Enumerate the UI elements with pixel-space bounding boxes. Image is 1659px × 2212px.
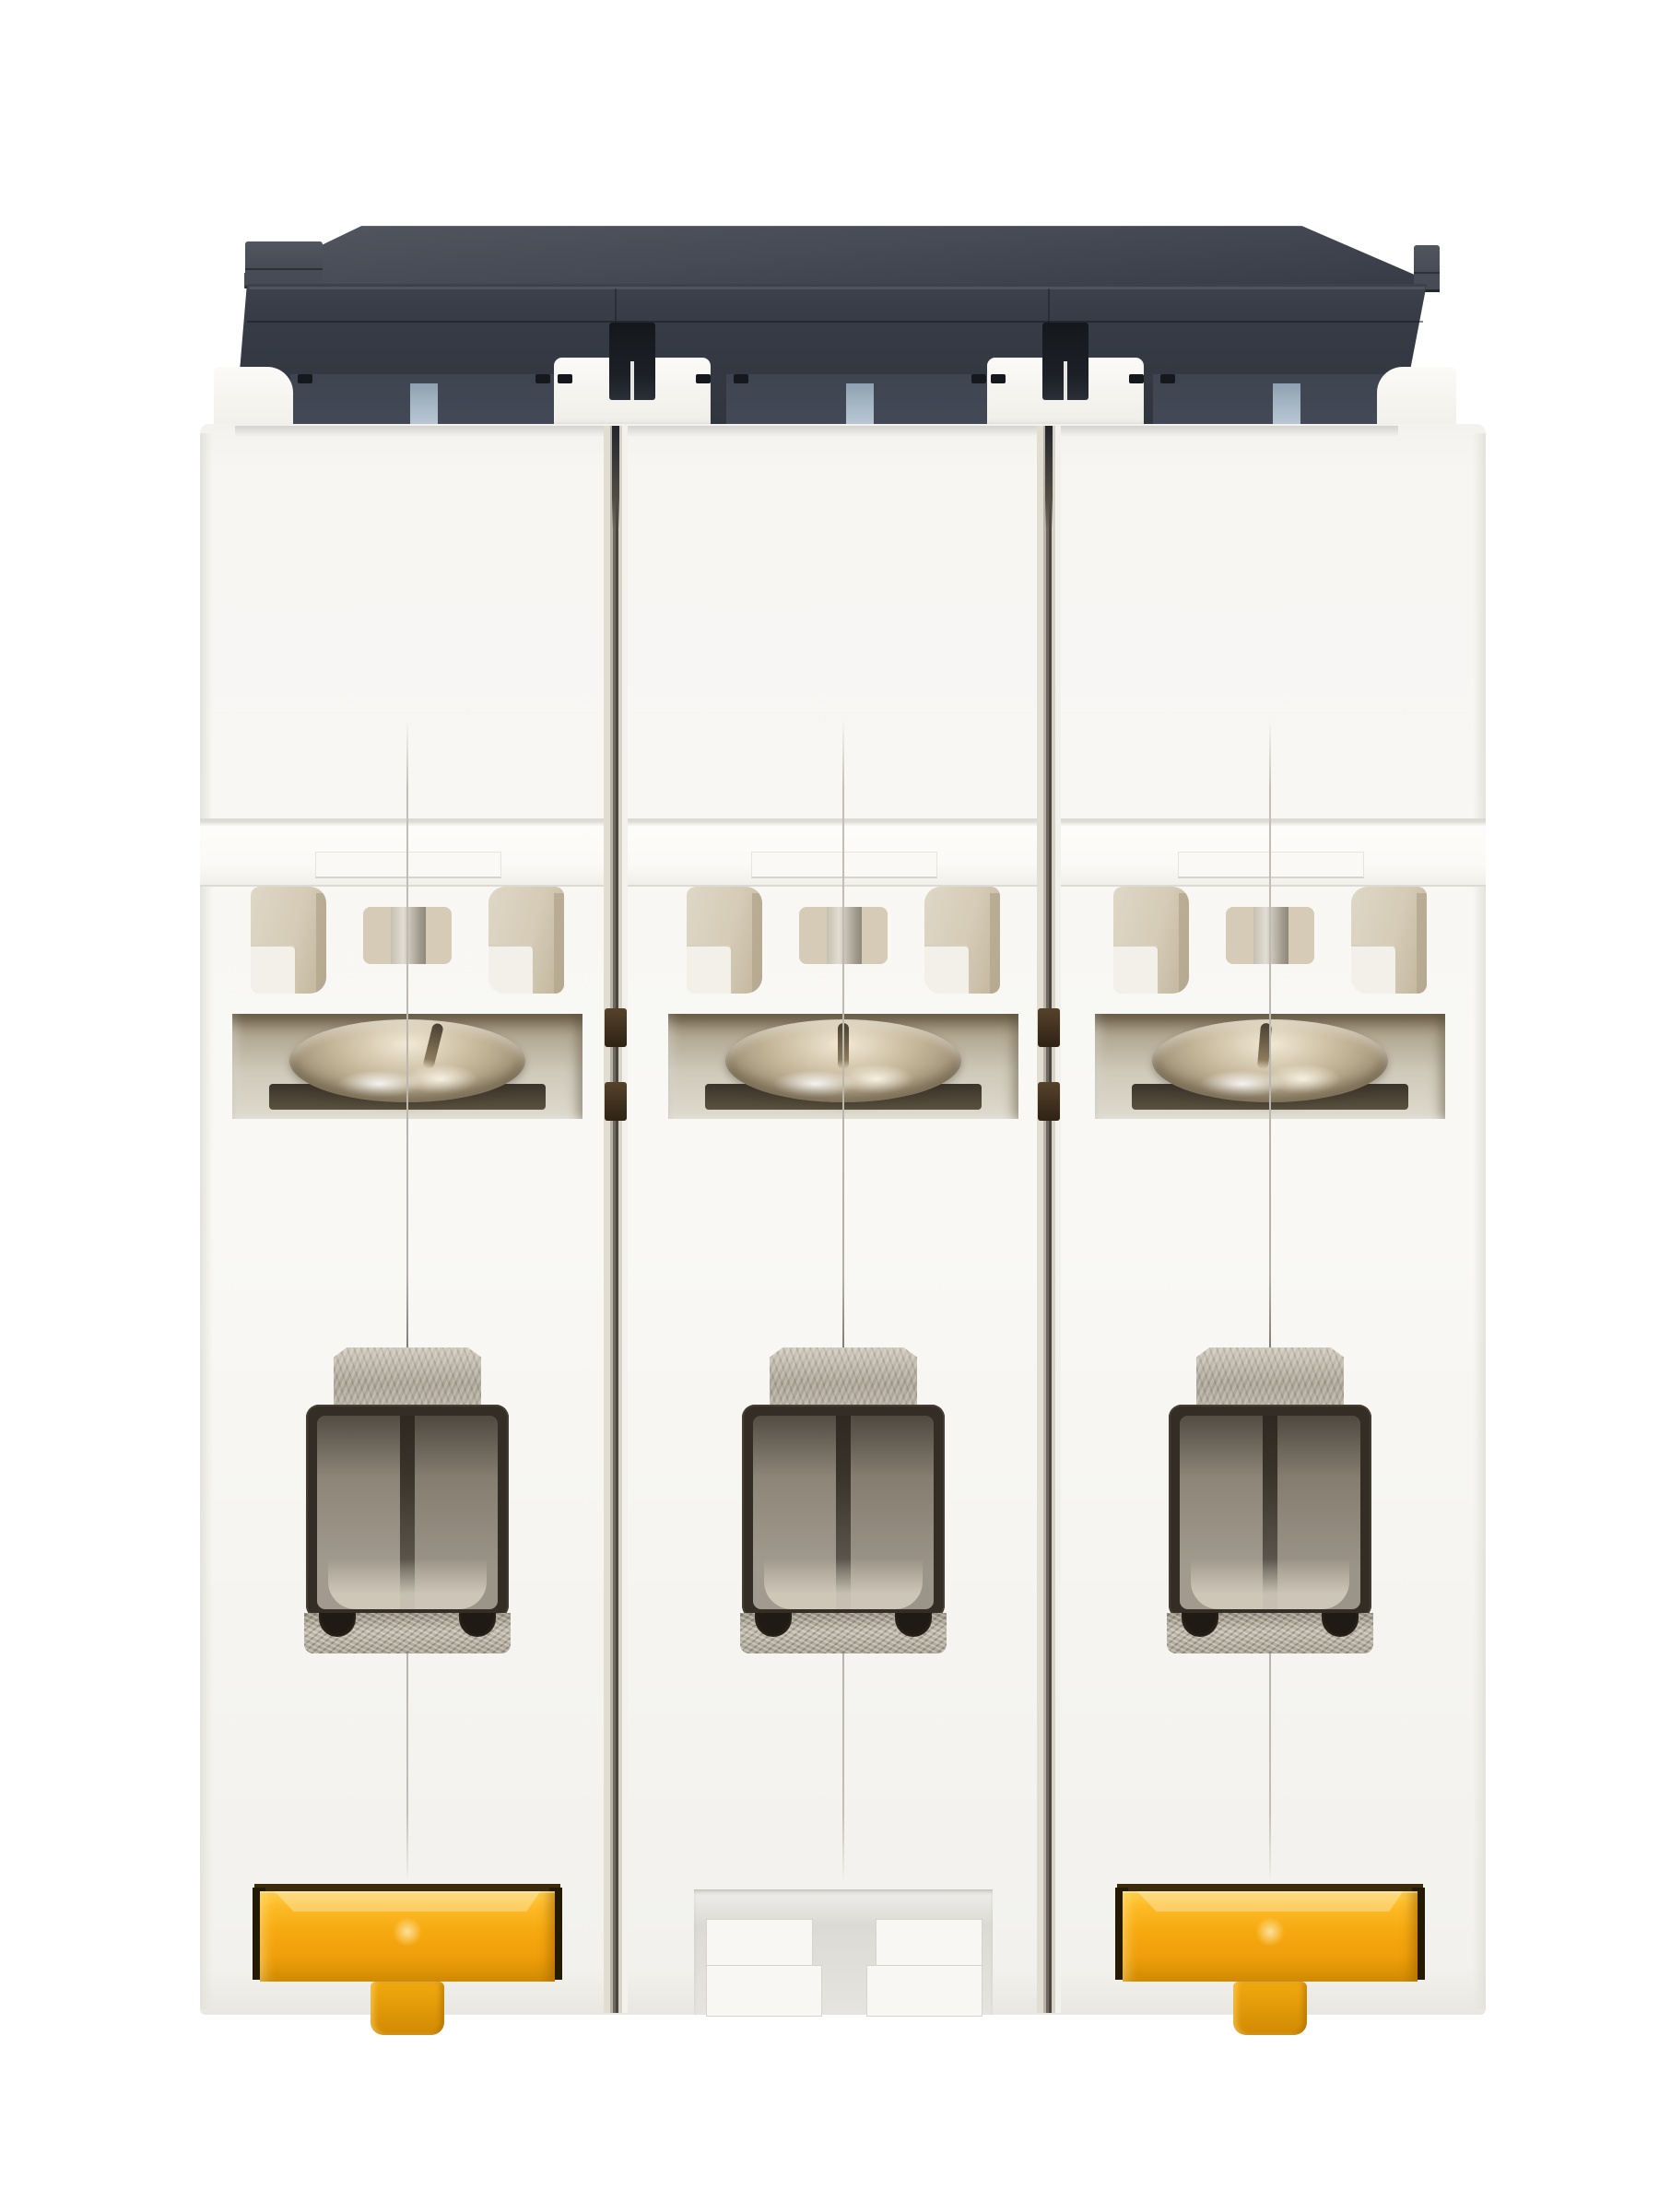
junction-lock-slot: [1038, 1082, 1060, 1121]
shell-seam: [406, 719, 408, 1884]
vent-window-right: [1351, 887, 1427, 994]
window-inner-sill: [1113, 945, 1159, 994]
terminal-clamp-tab: [334, 1347, 481, 1408]
terminal-opening: [742, 1405, 945, 1618]
terminal-clamp-tab: [770, 1347, 917, 1408]
window-inner-sill: [687, 945, 733, 994]
vent-window-right: [488, 887, 564, 994]
terminal-cage-interior: [1180, 1416, 1360, 1609]
window-inner-sill: [251, 945, 297, 994]
vent-window-left: [687, 887, 762, 994]
terminal-cage-interior: [317, 1416, 498, 1609]
cage-top-shade: [1180, 1416, 1360, 1609]
vent-window-right: [924, 887, 1000, 994]
window-inner-wall: [1417, 893, 1427, 994]
shell-seam: [842, 719, 844, 1884]
cutout-hook-right: [876, 1919, 982, 1969]
left-edge-shade: [200, 433, 213, 2009]
din-clip-tab: [1233, 1982, 1307, 2035]
window-inner-sill: [1351, 945, 1397, 994]
right-edge-shade: [1473, 433, 1486, 2009]
window-inner-wall: [990, 893, 1000, 994]
din-clip-tab: [371, 1982, 444, 2035]
window-inner-sill: [488, 945, 535, 994]
vent-window-left: [251, 887, 326, 994]
terminal-cage-interior: [753, 1416, 934, 1609]
window-inner-wall: [1179, 893, 1189, 994]
window-inner-wall: [316, 893, 326, 994]
junction-lock-slot: [605, 1008, 627, 1047]
din-clip-highlight: [1255, 1917, 1285, 1947]
junction-groove-shadow: [1045, 426, 1053, 529]
ledge-tab: [751, 852, 937, 878]
cage-top-shade: [753, 1416, 934, 1609]
window-inner-wall: [752, 893, 762, 994]
ledge-tab: [1178, 852, 1364, 878]
module-junction-groove: [604, 426, 628, 2013]
cage-top-shade: [317, 1416, 498, 1609]
module-junction-groove: [1037, 426, 1061, 2013]
junction-lock-slot: [1038, 1008, 1060, 1047]
window-inner-sill: [924, 945, 971, 994]
junction-lock-slot: [605, 1082, 627, 1121]
junction-groove-shadow: [612, 426, 619, 529]
ledge-tab: [315, 852, 501, 878]
breaker-body: [0, 0, 1659, 2212]
terminal-opening: [1169, 1405, 1371, 1618]
cutout-hook-right-base: [866, 1965, 982, 2017]
window-inner-wall: [554, 893, 564, 994]
cutout-hook-left-base: [706, 1965, 822, 2017]
breaker-photo: [0, 0, 1659, 2212]
cutout-hook-left: [706, 1919, 813, 1969]
cap-drop-shadow: [235, 426, 1398, 437]
shell-seam: [1269, 719, 1271, 1884]
din-clip-highlight: [393, 1917, 422, 1947]
terminal-opening: [306, 1405, 509, 1618]
terminal-clamp-tab: [1196, 1347, 1344, 1408]
vent-window-left: [1113, 887, 1189, 994]
